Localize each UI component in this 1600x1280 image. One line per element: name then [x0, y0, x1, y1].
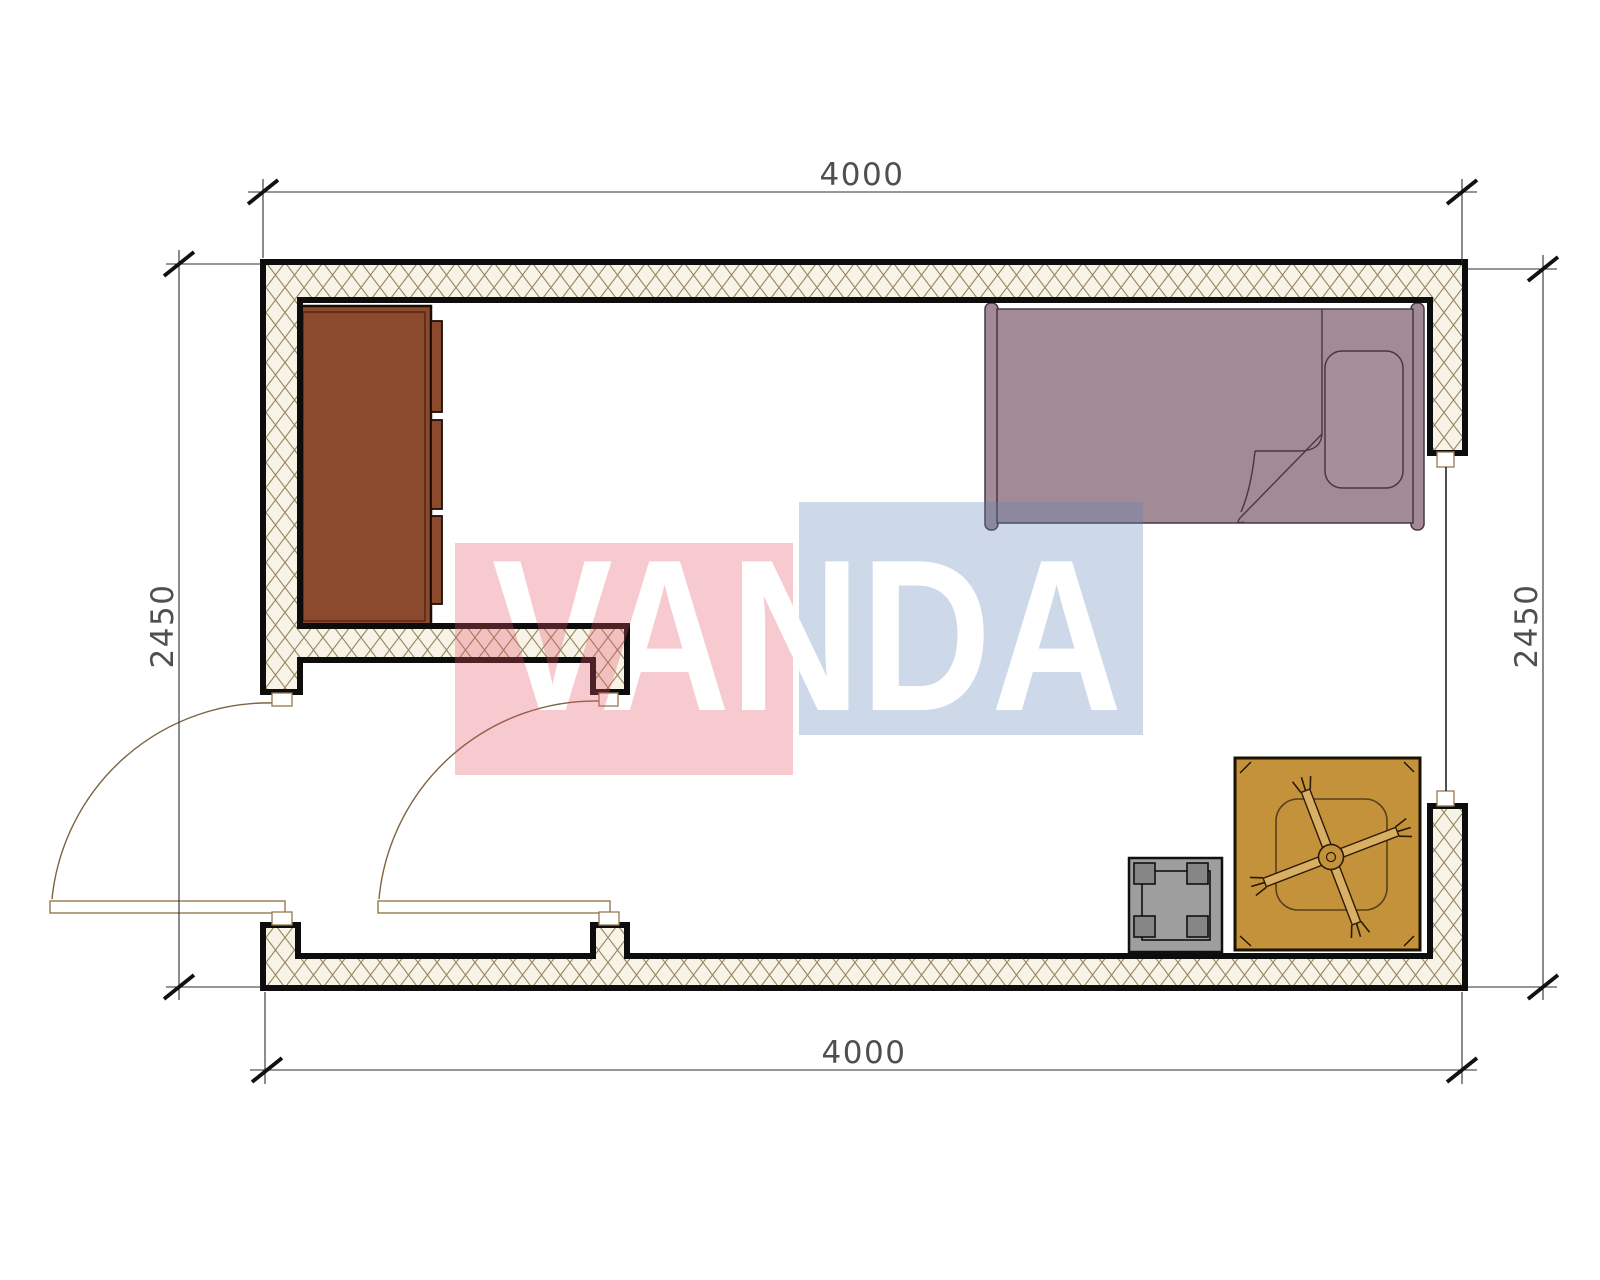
floor-plan-drawing: VANDA — [0, 0, 1600, 1280]
stool — [1129, 858, 1222, 952]
stool-leg — [1134, 916, 1155, 937]
door-jamb — [272, 912, 292, 925]
dimension-right-label: 2450 — [1509, 584, 1545, 669]
door-jamb — [599, 912, 619, 925]
watermark-blue-block — [799, 502, 1143, 735]
entry-door-leaf — [50, 901, 285, 913]
wardrobe-door-strip — [431, 516, 442, 604]
stool-leg — [1187, 916, 1208, 937]
dimension-bottom-label: 4000 — [822, 1035, 907, 1071]
wardrobe-door-strip — [431, 321, 442, 412]
dimension-left-label: 2450 — [145, 584, 181, 669]
wardrobe — [297, 306, 442, 627]
watermark-pink-block — [455, 543, 793, 775]
interior-door-leaf — [378, 901, 610, 913]
window-jamb — [1437, 452, 1454, 467]
stool-leg — [1187, 863, 1208, 884]
door-jamb — [272, 693, 292, 706]
bed-head-rail — [985, 303, 998, 530]
dimension-top-label: 4000 — [820, 157, 905, 193]
floor-plan-page: VANDA — [0, 0, 1600, 1280]
table-with-x-frame — [1221, 747, 1441, 967]
stool-leg — [1134, 863, 1155, 884]
wardrobe-door-strip — [431, 420, 442, 509]
bed-pillow — [1325, 351, 1403, 488]
window-jamb — [1437, 791, 1454, 806]
single-bed — [985, 303, 1424, 530]
